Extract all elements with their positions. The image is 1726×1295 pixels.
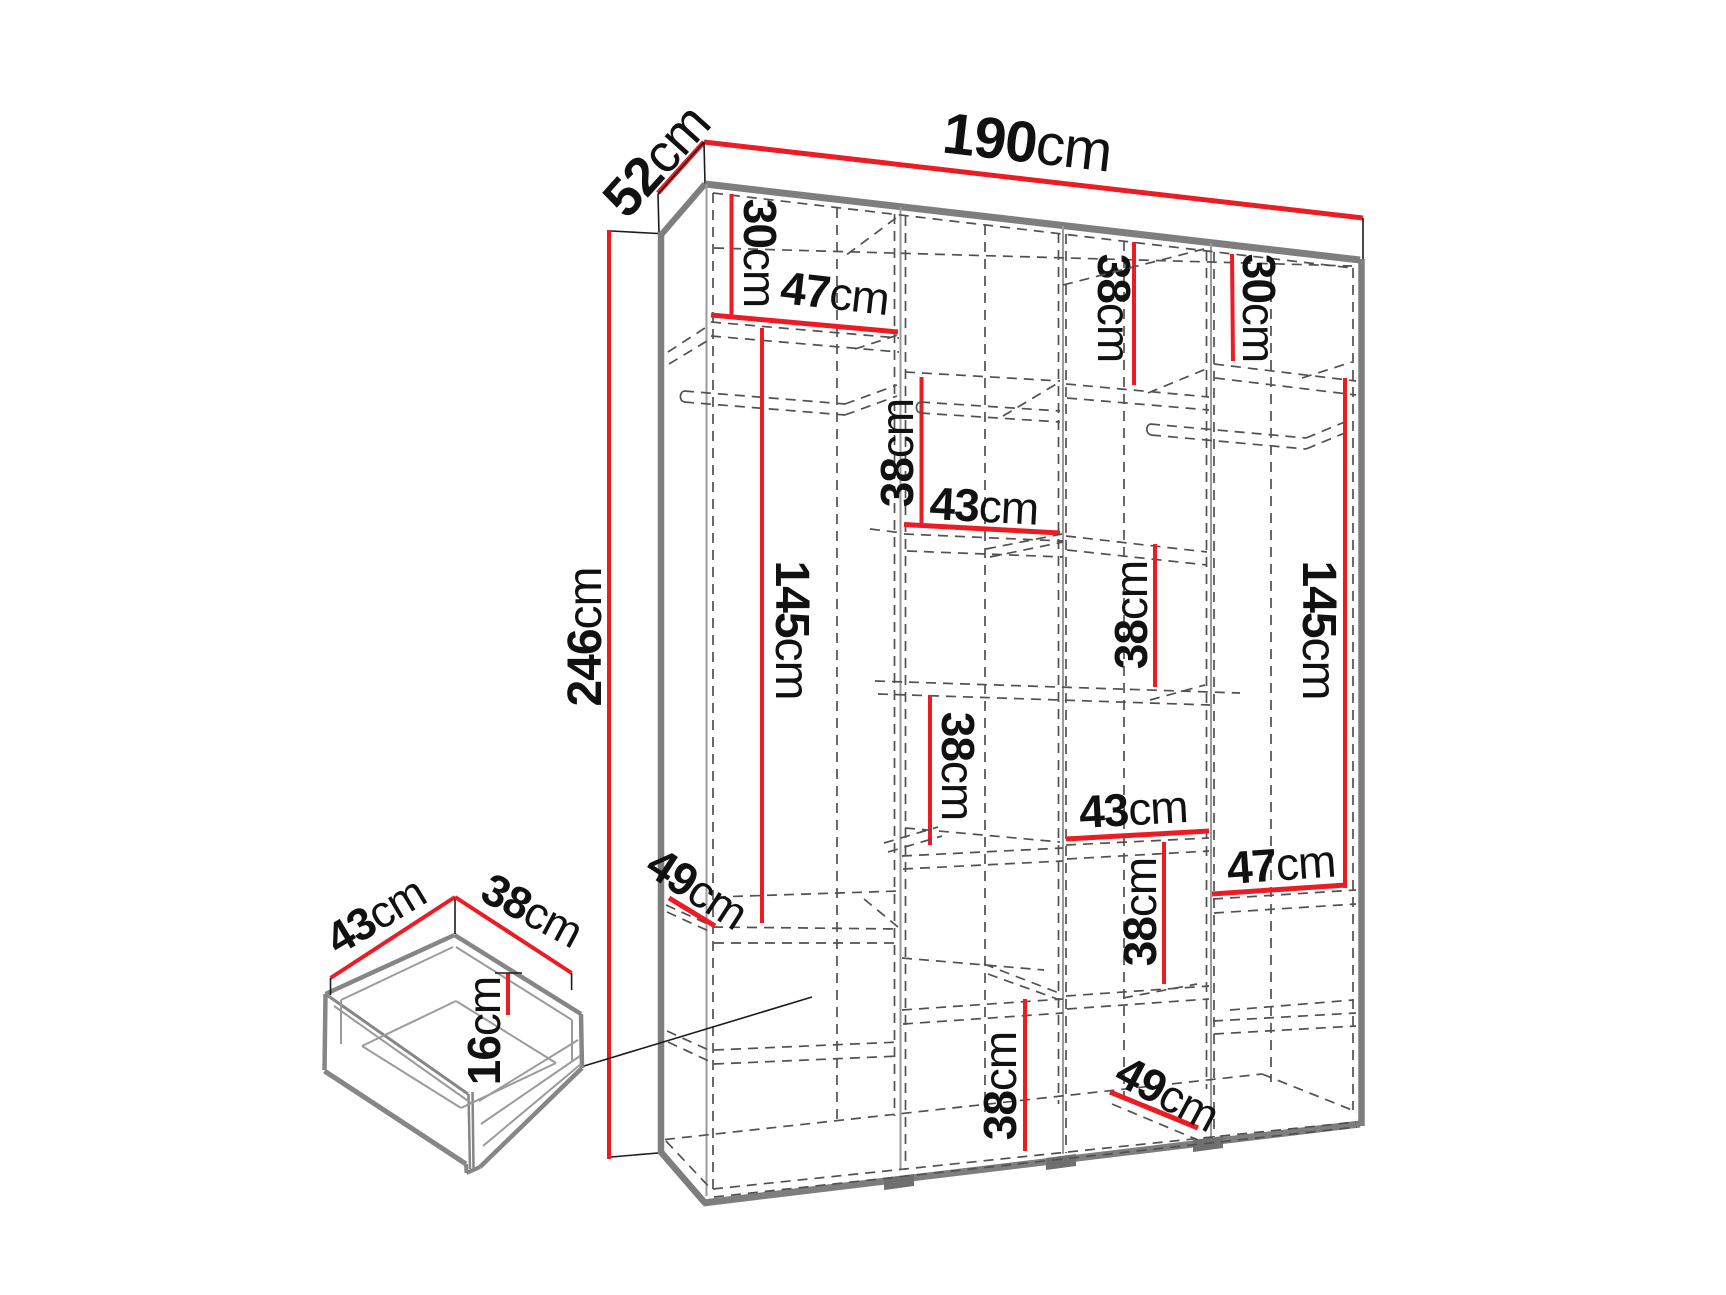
- svg-text:145cm: 145cm: [1292, 560, 1345, 699]
- svg-text:246cm: 246cm: [559, 567, 612, 706]
- svg-text:47cm: 47cm: [1225, 835, 1337, 894]
- svg-text:43cm: 43cm: [1078, 780, 1189, 838]
- svg-text:38cm: 38cm: [1114, 858, 1166, 967]
- svg-text:38cm: 38cm: [1088, 254, 1140, 363]
- svg-text:30cm: 30cm: [734, 199, 786, 308]
- svg-text:145cm: 145cm: [765, 560, 818, 699]
- svg-text:38cm: 38cm: [974, 1032, 1026, 1141]
- svg-text:38cm: 38cm: [932, 712, 984, 821]
- svg-text:43cm: 43cm: [928, 477, 1039, 535]
- svg-text:38cm: 38cm: [871, 399, 923, 508]
- svg-text:30cm: 30cm: [1233, 254, 1285, 363]
- svg-text:38cm: 38cm: [1105, 561, 1157, 670]
- svg-text:16cm: 16cm: [458, 977, 510, 1086]
